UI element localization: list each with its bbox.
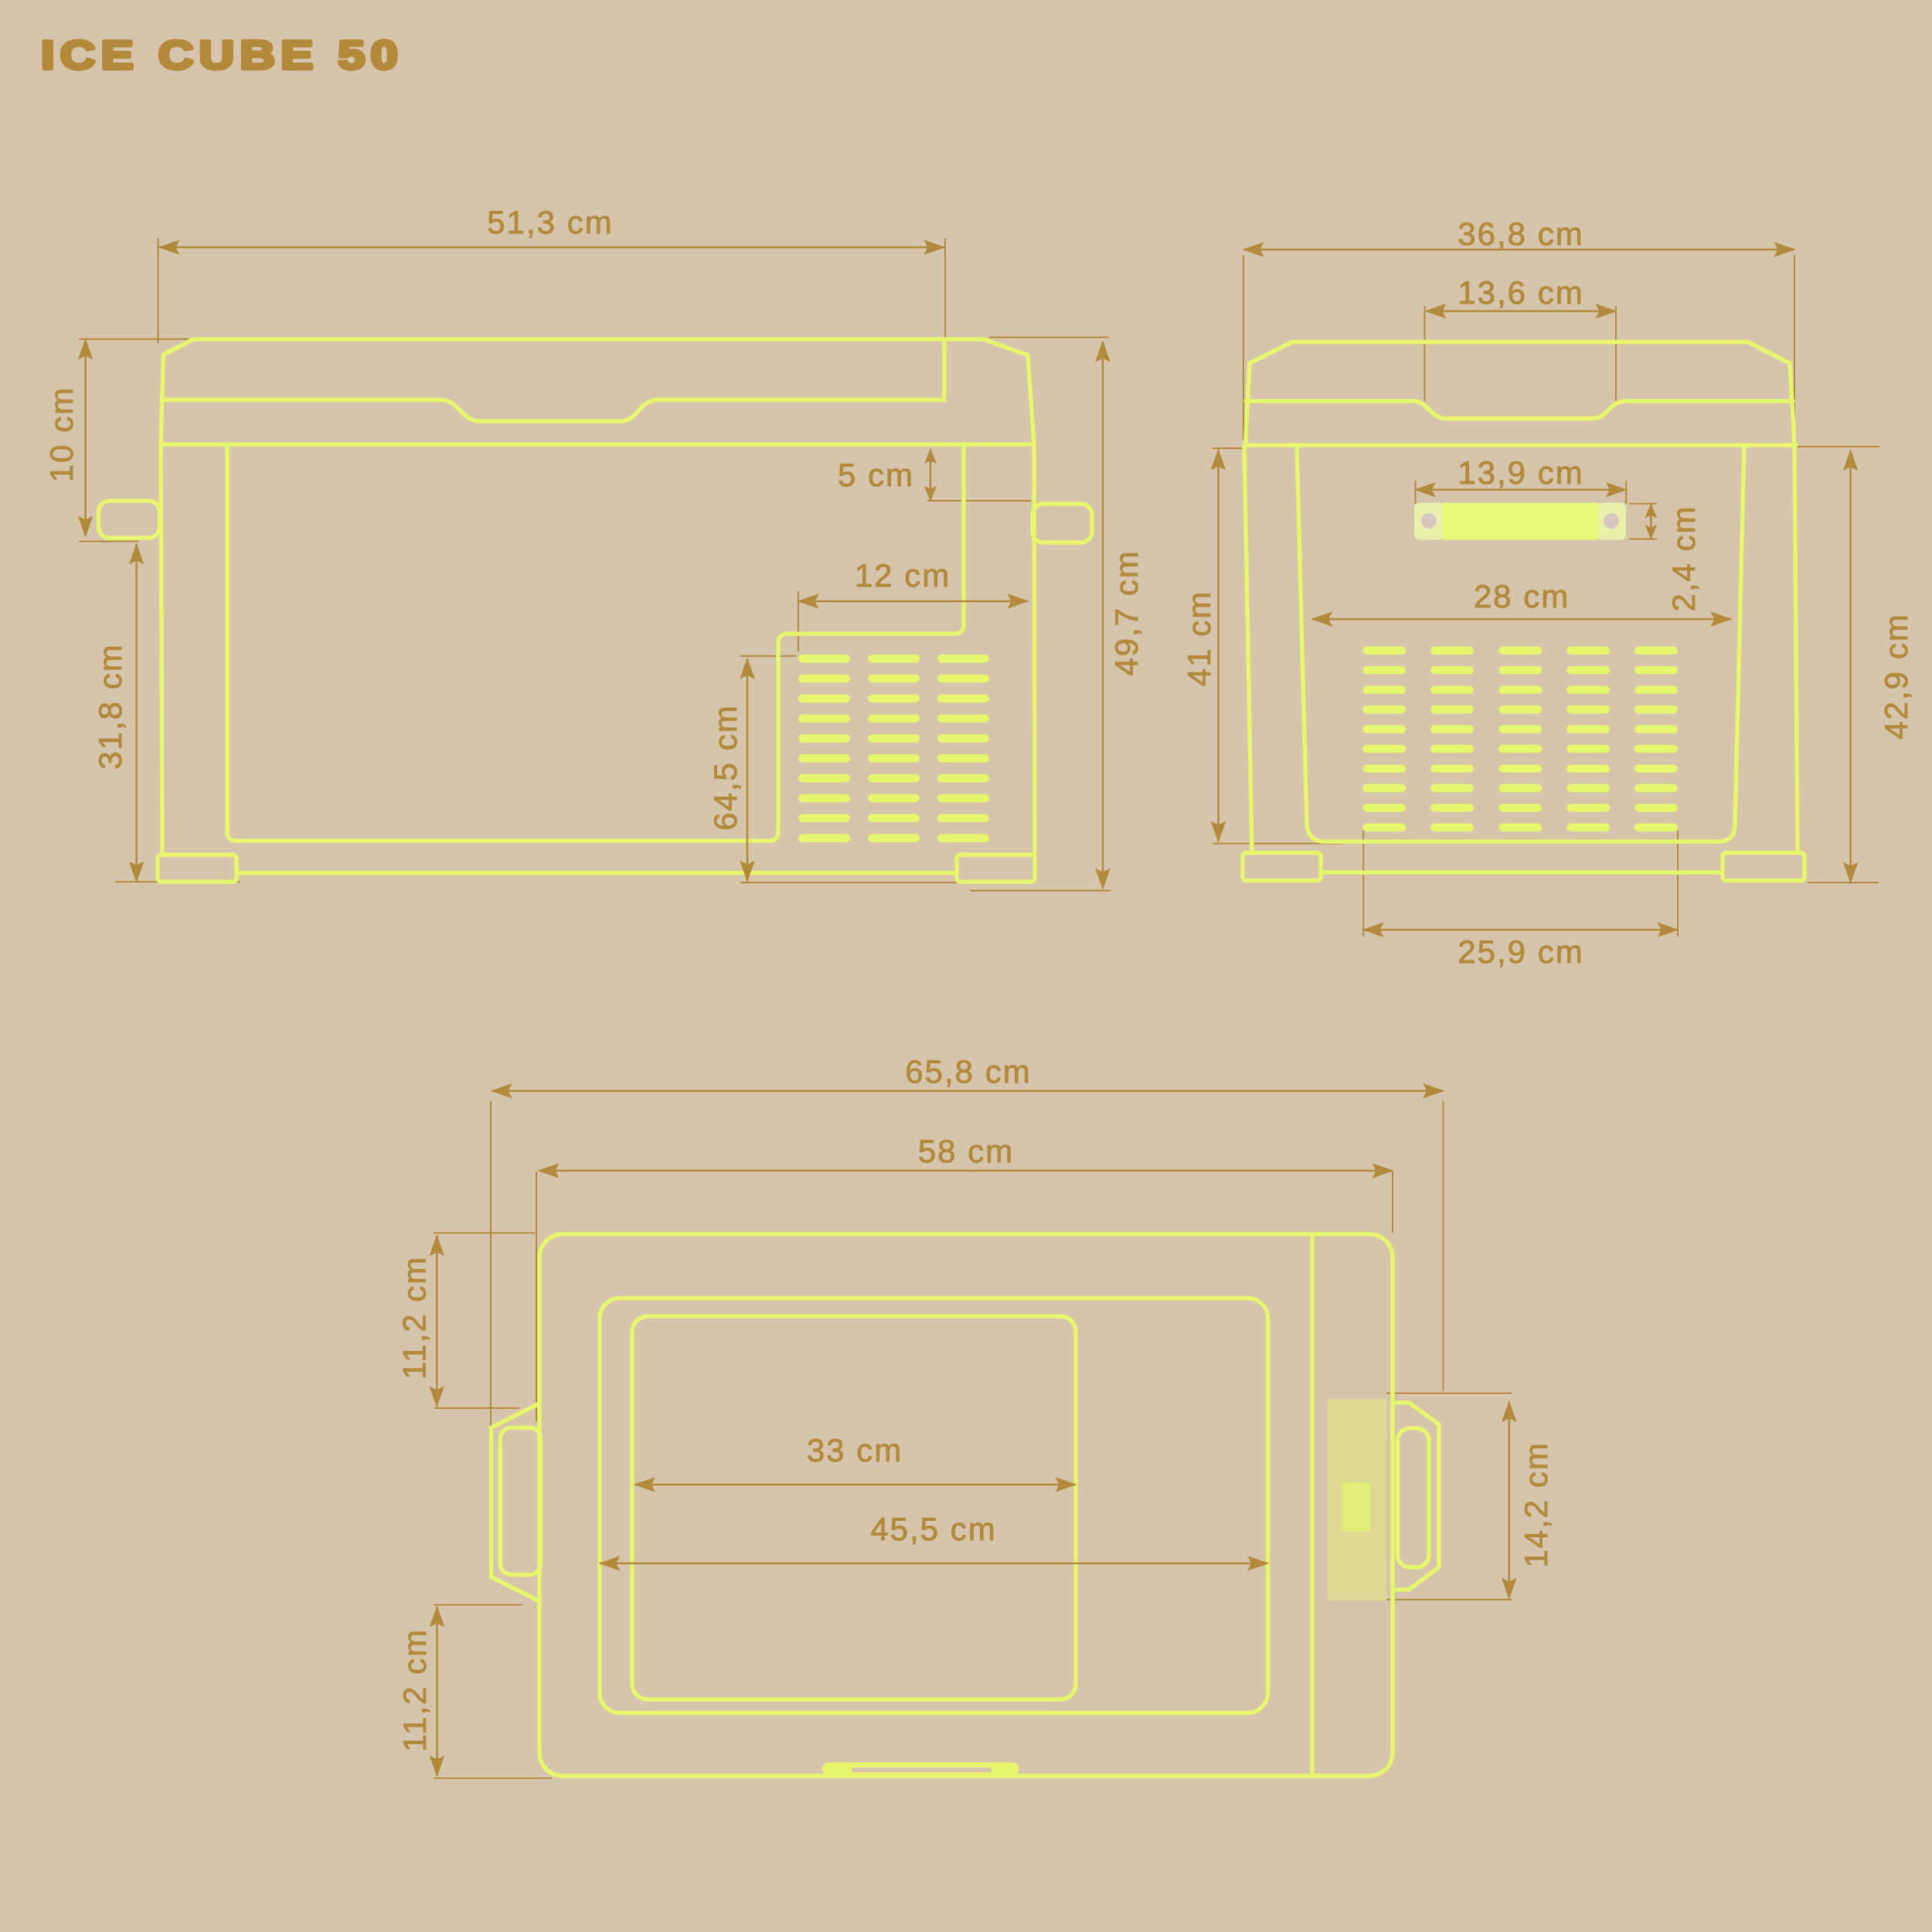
svg-text:45,5 cm: 45,5 cm (870, 1511, 996, 1547)
svg-text:13,6 cm: 13,6 cm (1458, 274, 1583, 311)
svg-text:33 cm: 33 cm (807, 1432, 903, 1468)
svg-text:5 cm: 5 cm (838, 457, 914, 493)
svg-text:64,5 cm: 64,5 cm (707, 704, 743, 830)
svg-text:14,2 cm: 14,2 cm (1518, 1441, 1554, 1567)
svg-text:51,3 cm: 51,3 cm (487, 204, 613, 240)
svg-text:10 cm: 10 cm (43, 386, 80, 482)
svg-text:11,2 cm: 11,2 cm (396, 1256, 433, 1379)
svg-text:42,9 cm: 42,9 cm (1878, 613, 1914, 739)
svg-text:28 cm: 28 cm (1474, 578, 1570, 614)
svg-text:58 cm: 58 cm (918, 1133, 1014, 1169)
svg-text:13,9 cm: 13,9 cm (1458, 454, 1583, 491)
svg-text:41 cm: 41 cm (1181, 590, 1217, 686)
svg-text:31,8 cm: 31,8 cm (92, 643, 128, 769)
svg-text:25,9 cm: 25,9 cm (1458, 934, 1583, 970)
svg-text:12 cm: 12 cm (855, 557, 951, 594)
svg-text:2,4 cm: 2,4 cm (1665, 505, 1702, 611)
svg-text:65,8 cm: 65,8 cm (905, 1053, 1031, 1090)
svg-text:49,7 cm: 49,7 cm (1108, 549, 1145, 675)
svg-text:11,2 cm: 11,2 cm (396, 1628, 433, 1752)
svg-text:ICE CUBE 50: ICE CUBE 50 (41, 33, 403, 78)
svg-text:36,8 cm: 36,8 cm (1458, 216, 1583, 252)
